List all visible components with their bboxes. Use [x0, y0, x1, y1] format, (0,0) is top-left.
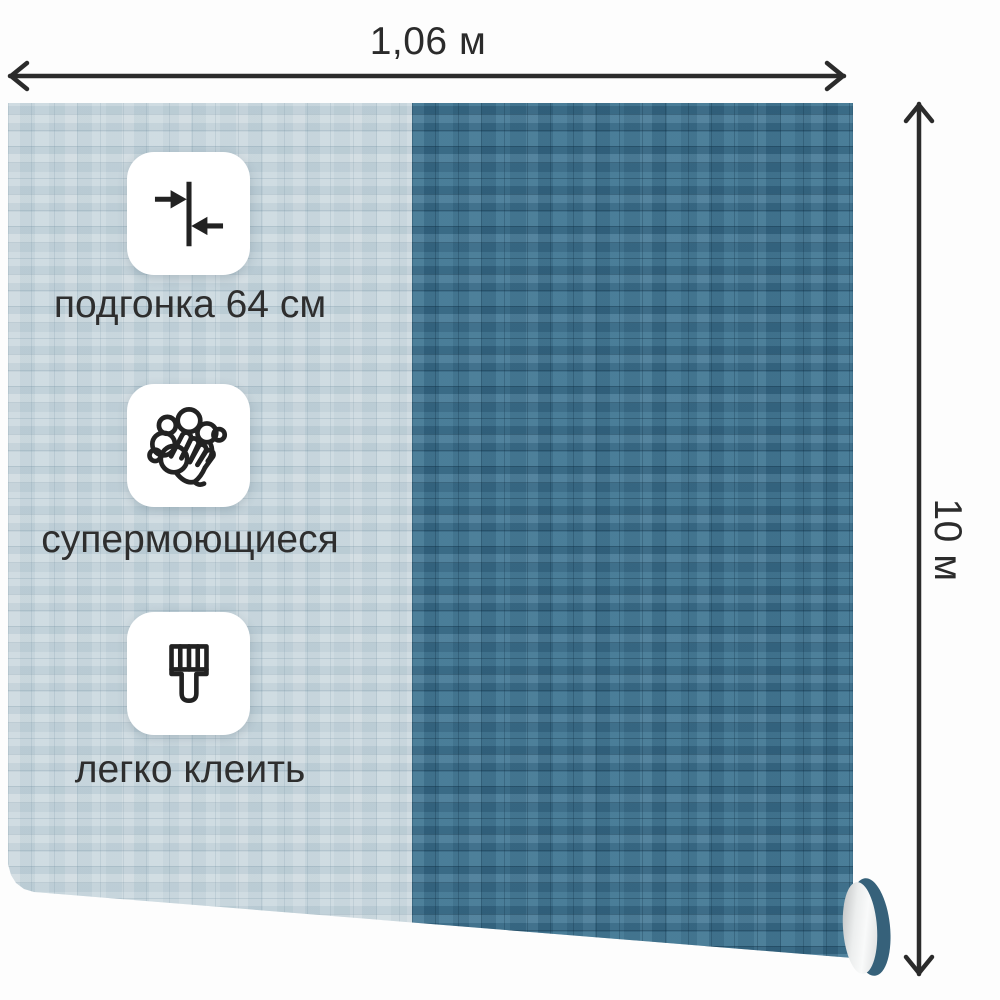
feature-label-washable: супермоющиеся [8, 518, 372, 562]
seam-match-icon [143, 168, 235, 260]
height-dimension-label: 10 м [929, 470, 969, 610]
wallpaper-roll-curl [838, 876, 894, 980]
product-image: 1,06 м 10 м [0, 0, 1000, 1000]
paint-brush-icon [143, 628, 235, 720]
feature-label-easy-glue: легко клеить [8, 748, 372, 792]
feature-badge-washable [127, 384, 250, 507]
washable-hands-icon [142, 399, 236, 493]
feature-badge-easy-glue [127, 612, 250, 735]
width-dimension-label: 1,06 м [8, 20, 848, 64]
horizontal-dimension-arrow [6, 59, 848, 93]
feature-badge-seam-match [127, 152, 250, 275]
wallpaper-dark-half [412, 103, 853, 963]
feature-label-seam-match: подгонка 64 см [8, 283, 372, 327]
